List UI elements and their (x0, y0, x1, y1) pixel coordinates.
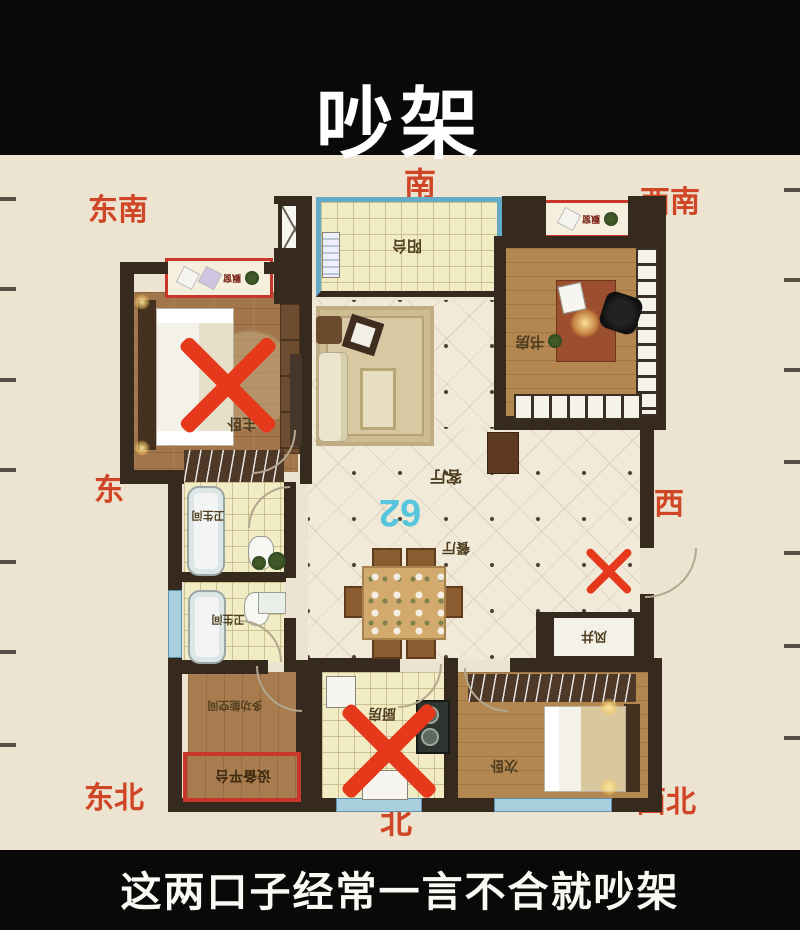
study-bookshelf (514, 394, 642, 420)
edge-tick (0, 650, 16, 654)
wall-segment (274, 196, 312, 204)
wall-segment (506, 236, 658, 248)
video-frame: 吵架 这两口子经常一言不合就吵架 南 东南 西南 东 西 东北 北 西北 阳台 … (0, 0, 800, 930)
sofa (318, 352, 348, 442)
edge-tick (784, 368, 800, 372)
compass-south: 南 (404, 168, 436, 200)
multi-function-label: 多功能空间 (198, 698, 272, 714)
edge-tick (784, 460, 800, 464)
wall-segment (274, 248, 300, 304)
wall-segment (120, 262, 168, 274)
compass-southeast: 东南 (88, 196, 148, 226)
red-x-entry-door (580, 542, 638, 600)
bedside-lamp (134, 294, 150, 310)
wall-segment (120, 262, 134, 472)
wind-shaft-label: 风井 (570, 628, 618, 647)
plant-icon (604, 212, 618, 226)
second-bedroom-window (494, 798, 612, 812)
wall-segment (502, 196, 546, 238)
wall-segment (648, 658, 662, 812)
wall-segment (536, 612, 548, 664)
coffee-table (360, 368, 396, 430)
bay-window-right-label: 飘窗 (582, 213, 600, 226)
bedside-lamp (600, 698, 618, 716)
dining-chair (372, 638, 402, 659)
sink (258, 592, 286, 614)
bedside-lamp (134, 440, 150, 456)
bay-window-right: 飘窗 (542, 200, 636, 238)
wall-segment (176, 660, 268, 674)
wall-segment (494, 236, 506, 428)
dining-chair (406, 638, 436, 659)
caption-text: 这两口子经常一言不合就吵架 (0, 858, 800, 918)
bay-window-left-label: 飘窗 (223, 272, 241, 285)
bathtub (187, 486, 225, 576)
edge-tick (784, 278, 800, 282)
wall-segment (308, 658, 400, 672)
edge-tick (0, 560, 16, 564)
equipment-platform-label: 设备平台 (208, 766, 278, 786)
master-bed-headboard (138, 300, 156, 450)
dining-table (362, 566, 446, 640)
wall-segment (284, 618, 296, 672)
hall-cabinet (487, 432, 519, 474)
plant-icon (268, 552, 286, 570)
page-title: 吵架 (0, 62, 800, 174)
desk-lamp (570, 308, 600, 338)
living-room-label: 客厅 (418, 466, 474, 490)
compass-northeast: 东北 (84, 784, 144, 814)
edge-tick (0, 287, 16, 291)
plant-icon (252, 556, 266, 570)
pillow-icon (176, 266, 200, 290)
dining-room-label: 餐厅 (430, 538, 482, 558)
pillow-icon (557, 207, 581, 231)
armchair (316, 316, 342, 344)
unit-number: 62 (366, 490, 434, 533)
wall-segment (640, 594, 654, 666)
edge-tick (0, 468, 16, 472)
wall-segment (308, 658, 322, 812)
compass-west: 西 (654, 490, 684, 520)
edge-tick (0, 197, 16, 201)
wall-segment (640, 428, 654, 548)
edge-tick (0, 743, 16, 747)
edge-tick (784, 644, 800, 648)
balcony-label: 阳台 (382, 236, 432, 257)
balcony-rack (322, 232, 340, 278)
study-label: 书房 (506, 332, 554, 353)
bathroom-window (168, 590, 182, 658)
edge-tick (784, 736, 800, 740)
second-bedroom-label: 次卧 (478, 756, 530, 776)
bathroom-upper-label: 卫生间 (186, 508, 230, 524)
door-arc-entry (645, 548, 697, 598)
wall-segment (168, 656, 182, 812)
edge-tick (784, 551, 800, 555)
edge-tick (784, 188, 800, 192)
bedside-lamp (600, 778, 618, 796)
second-bed-headboard (624, 704, 640, 792)
edge-tick (0, 378, 16, 382)
bay-window-left: 飘窗 (165, 258, 273, 298)
red-x-master-bed (168, 325, 288, 445)
pillow-icon (198, 266, 222, 290)
study-bookshelf (636, 248, 658, 416)
plant-icon (245, 271, 259, 285)
red-x-kitchen (330, 690, 448, 812)
